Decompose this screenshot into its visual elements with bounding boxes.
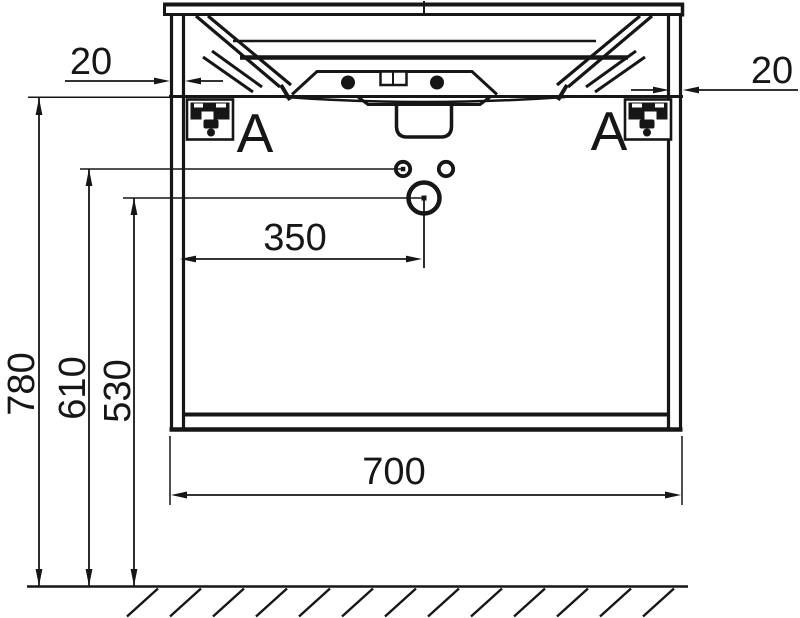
section-label-left: A xyxy=(237,102,274,164)
dimension-700: 700 xyxy=(170,436,682,505)
wall-bracket-right xyxy=(625,100,671,140)
fixing-dot-left xyxy=(341,76,355,90)
fixing-dot-right xyxy=(430,76,444,90)
dim-label-780: 780 xyxy=(1,352,43,415)
section-label-right: A xyxy=(591,100,628,162)
dim-label-700: 700 xyxy=(362,451,425,493)
dim-label-20-left: 20 xyxy=(70,41,112,83)
floor-hatching xyxy=(27,587,688,617)
dimension-350: 350 xyxy=(180,200,424,268)
wall-bracket-left xyxy=(187,100,233,140)
dimension-530: 530 xyxy=(97,198,424,586)
faucet-hole-right-small xyxy=(439,162,453,176)
dimension-780: 780 xyxy=(1,97,169,586)
dim-label-610: 610 xyxy=(52,356,94,419)
hatch-strokes xyxy=(127,589,674,617)
dimension-20-right: 20 xyxy=(631,50,798,93)
dim-label-350: 350 xyxy=(263,217,326,259)
technical-drawing-canvas: A A 20 20 780 610 xyxy=(0,0,800,618)
drain-pedestal xyxy=(292,72,497,95)
dim-label-530: 530 xyxy=(97,359,139,422)
drain-box xyxy=(358,97,490,137)
dim-label-20-right: 20 xyxy=(751,50,793,92)
dimension-20-left: 20 xyxy=(65,41,223,84)
technical-drawing-page: A A 20 20 780 610 xyxy=(0,0,800,618)
